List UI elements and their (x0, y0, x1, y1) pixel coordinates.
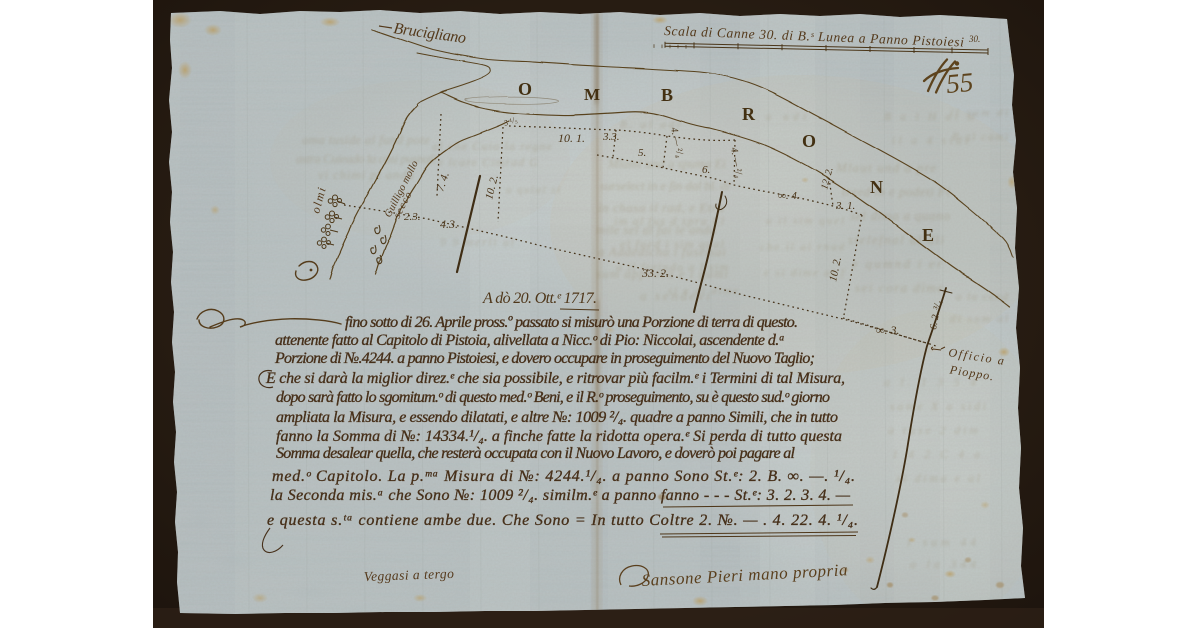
svg-text:dopo sarà fatto lo sgomitum.ᵒ: dopo sarà fatto lo sgomitum.ᵒ di questo … (276, 389, 830, 406)
svg-text:O: O (518, 79, 532, 99)
svg-text:∞. 4.: ∞. 4. (778, 190, 800, 202)
svg-text:10. 1.: 10. 1. (558, 131, 585, 145)
svg-text:treed in e podeti Fi: treed in e podeti Fi (842, 184, 950, 199)
svg-text:la Seconda mis.ᵃ che Sono №: 1: la Seconda mis.ᵃ che Sono №: 1009 ²/₄. s… (270, 487, 851, 504)
svg-text:6.: 6. (702, 164, 710, 176)
svg-text:Veggasi a tergo: Veggasi a tergo (364, 566, 455, 584)
svg-text:a la cend: a la cend (956, 291, 1009, 303)
svg-text:55: 55 (945, 67, 975, 99)
svg-text:ama tuside al fund pote: ama tuside al fund pote (302, 132, 430, 147)
svg-text:A dò 20. Ott.ᵉ 1717.: A dò 20. Ott.ᵉ 1717. (482, 290, 597, 307)
svg-text:fino sotto di 26. Aprile pross: fino sotto di 26. Aprile pross.º passato… (345, 314, 798, 331)
svg-text:attenente fatto al Capitolo di: attenente fatto al Capitolo di Pistoia, … (275, 332, 785, 349)
svg-text:N: N (870, 177, 883, 197)
svg-text:di sum al: di sum al (950, 313, 1008, 325)
svg-text:33. 2.: 33. 2. (641, 266, 669, 280)
svg-text:3. 1.: 3. 1. (835, 200, 855, 212)
svg-text:Porzione di №.4244. a panno Pi: Porzione di №.4244. a panno Pistoiesi, e… (274, 350, 815, 367)
svg-text:ampliata la Misura, e essendo: ampliata la Misura, e essendo dilatati, … (276, 409, 838, 426)
svg-text:sel dima a quano: sel dima a quano (850, 208, 951, 223)
svg-text:O: O (802, 131, 816, 151)
svg-text:4.3.: 4.3. (440, 217, 458, 231)
svg-text:Somma desalear quella, che res: Somma desalear quella, che resterà occup… (276, 445, 796, 462)
svg-text:M: M (584, 85, 600, 104)
svg-text:fanno la Somma di №: 14334.¹/₄: fanno la Somma di №: 14334.¹/₄. a finche… (276, 428, 842, 445)
svg-text:B: B (661, 85, 673, 105)
svg-text:a quial si: a quial si (506, 184, 560, 196)
svg-text:med.ᵒ Capitolo. La p.ᵐᵃ Mis: med.ᵒ Capitolo. La p.ᵐᵃ Misura di №: 424… (272, 468, 855, 485)
svg-text:3.3.: 3.3. (602, 131, 620, 143)
svg-text:e lcare Cimrad G: e lcare Cimrad G (438, 155, 538, 169)
svg-text:al che Cuio la regne: al che Cuio la regne (432, 139, 553, 153)
svg-text:in chasa il rad, e Etra: in chasa il rad, e Etra (598, 200, 725, 215)
svg-text:30.: 30. (968, 34, 980, 44)
svg-text:E: E (922, 225, 934, 245)
svg-text:∞. 3.: ∞. 3. (876, 323, 900, 337)
svg-text:1 sum 44: 1 sum 44 (906, 535, 976, 549)
svg-text:2.3.: 2.3. (404, 211, 421, 223)
svg-text:E che si darà la miglior direz: E che si darà la miglior direz.ᵉ che sia… (265, 370, 845, 387)
svg-text:e qumnd i er: e qumnd i er (852, 256, 943, 271)
svg-text:e questa s.ᵗᵃ contiene ambe du: e questa s.ᵗᵃ contiene ambe due. Che Son… (267, 512, 858, 529)
svg-text:si e al dime: si e al dime (668, 285, 738, 297)
svg-text:R: R (742, 104, 756, 124)
svg-text:5.: 5. (638, 147, 646, 159)
svg-text:a la 344: a la 344 (910, 557, 976, 571)
svg-text:surselect in e fin dal bl. di: surselect in e fin dal bl. di (600, 178, 730, 193)
